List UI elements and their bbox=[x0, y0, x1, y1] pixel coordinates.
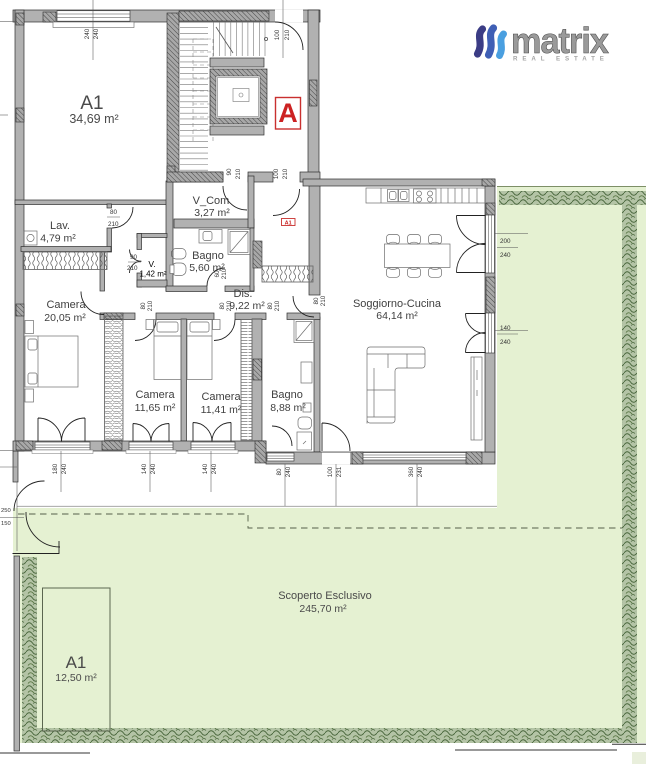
svg-text:150: 150 bbox=[1, 521, 11, 527]
svg-text:A1: A1 bbox=[66, 653, 87, 672]
svg-text:Lav.: Lav. bbox=[50, 220, 70, 232]
svg-text:140: 140 bbox=[141, 463, 148, 474]
svg-text:Dis.: Dis. bbox=[234, 288, 253, 300]
svg-text:A: A bbox=[278, 98, 298, 128]
svg-text:80: 80 bbox=[276, 468, 283, 476]
svg-text:180: 180 bbox=[52, 463, 59, 474]
svg-text:60: 60 bbox=[214, 270, 221, 278]
svg-text:90: 90 bbox=[130, 254, 138, 261]
svg-text:34,69 m²: 34,69 m² bbox=[69, 112, 118, 126]
svg-text:80: 80 bbox=[219, 302, 226, 310]
svg-text:A1: A1 bbox=[285, 220, 292, 226]
svg-text:210: 210 bbox=[127, 265, 138, 272]
svg-text:80: 80 bbox=[267, 302, 274, 310]
svg-text:100: 100 bbox=[327, 466, 334, 477]
svg-text:Camera: Camera bbox=[201, 391, 241, 403]
svg-text:240: 240 bbox=[211, 463, 218, 474]
svg-text:231: 231 bbox=[336, 466, 343, 477]
svg-text:90: 90 bbox=[226, 168, 233, 176]
svg-text:A1: A1 bbox=[80, 93, 103, 114]
svg-text:100: 100 bbox=[274, 29, 281, 40]
svg-text:20,05 m²: 20,05 m² bbox=[44, 312, 86, 324]
svg-text:Camera: Camera bbox=[46, 299, 86, 311]
svg-text:240: 240 bbox=[285, 466, 292, 477]
svg-text:200: 200 bbox=[500, 238, 511, 245]
svg-text:Camera: Camera bbox=[135, 389, 175, 401]
svg-text:240: 240 bbox=[93, 28, 100, 39]
svg-text:80: 80 bbox=[140, 302, 147, 310]
svg-text:Bagno: Bagno bbox=[271, 389, 303, 401]
svg-text:210: 210 bbox=[226, 300, 233, 311]
svg-text:240: 240 bbox=[500, 339, 511, 346]
svg-text:64,14 m²: 64,14 m² bbox=[376, 310, 418, 322]
svg-text:Scoperto Esclusivo: Scoperto Esclusivo bbox=[278, 590, 372, 602]
svg-text:80: 80 bbox=[313, 297, 320, 305]
svg-text:1,42 m²: 1,42 m² bbox=[139, 270, 166, 279]
svg-text:11,65 m²: 11,65 m² bbox=[135, 402, 176, 414]
svg-text:3,27 m²: 3,27 m² bbox=[194, 207, 230, 219]
svg-text:8,88 m²: 8,88 m² bbox=[270, 402, 306, 414]
svg-text:210: 210 bbox=[235, 168, 242, 179]
svg-text:210: 210 bbox=[147, 300, 154, 311]
svg-text:360: 360 bbox=[408, 466, 415, 477]
svg-text:V_Com: V_Com bbox=[193, 195, 230, 207]
svg-text:12,50 m²: 12,50 m² bbox=[55, 672, 97, 684]
svg-text:V.: V. bbox=[148, 259, 155, 269]
svg-text:140: 140 bbox=[202, 463, 209, 474]
svg-text:140: 140 bbox=[500, 325, 511, 332]
svg-text:210: 210 bbox=[221, 268, 228, 279]
svg-text:11,41 m²: 11,41 m² bbox=[201, 404, 242, 416]
svg-text:240: 240 bbox=[417, 466, 424, 477]
svg-text:80: 80 bbox=[110, 209, 118, 216]
svg-text:210: 210 bbox=[320, 295, 327, 306]
svg-text:240: 240 bbox=[150, 463, 157, 474]
svg-text:4,79 m²: 4,79 m² bbox=[40, 233, 76, 245]
svg-text:210: 210 bbox=[284, 29, 291, 40]
svg-text:250: 250 bbox=[1, 508, 11, 514]
svg-text:9,22 m²: 9,22 m² bbox=[229, 300, 265, 312]
svg-text:240: 240 bbox=[84, 28, 91, 39]
svg-text:210: 210 bbox=[274, 300, 281, 311]
svg-text:Bagno: Bagno bbox=[192, 250, 224, 262]
svg-text:245,70 m²: 245,70 m² bbox=[299, 603, 347, 615]
svg-text:240: 240 bbox=[61, 463, 68, 474]
svg-text:REAL ESTATE: REAL ESTATE bbox=[513, 56, 609, 63]
svg-text:210: 210 bbox=[282, 168, 289, 179]
svg-text:100: 100 bbox=[273, 168, 280, 179]
svg-text:Soggiorno-Cucina: Soggiorno-Cucina bbox=[353, 298, 442, 310]
svg-text:240: 240 bbox=[500, 252, 511, 259]
svg-text:210: 210 bbox=[108, 221, 119, 228]
